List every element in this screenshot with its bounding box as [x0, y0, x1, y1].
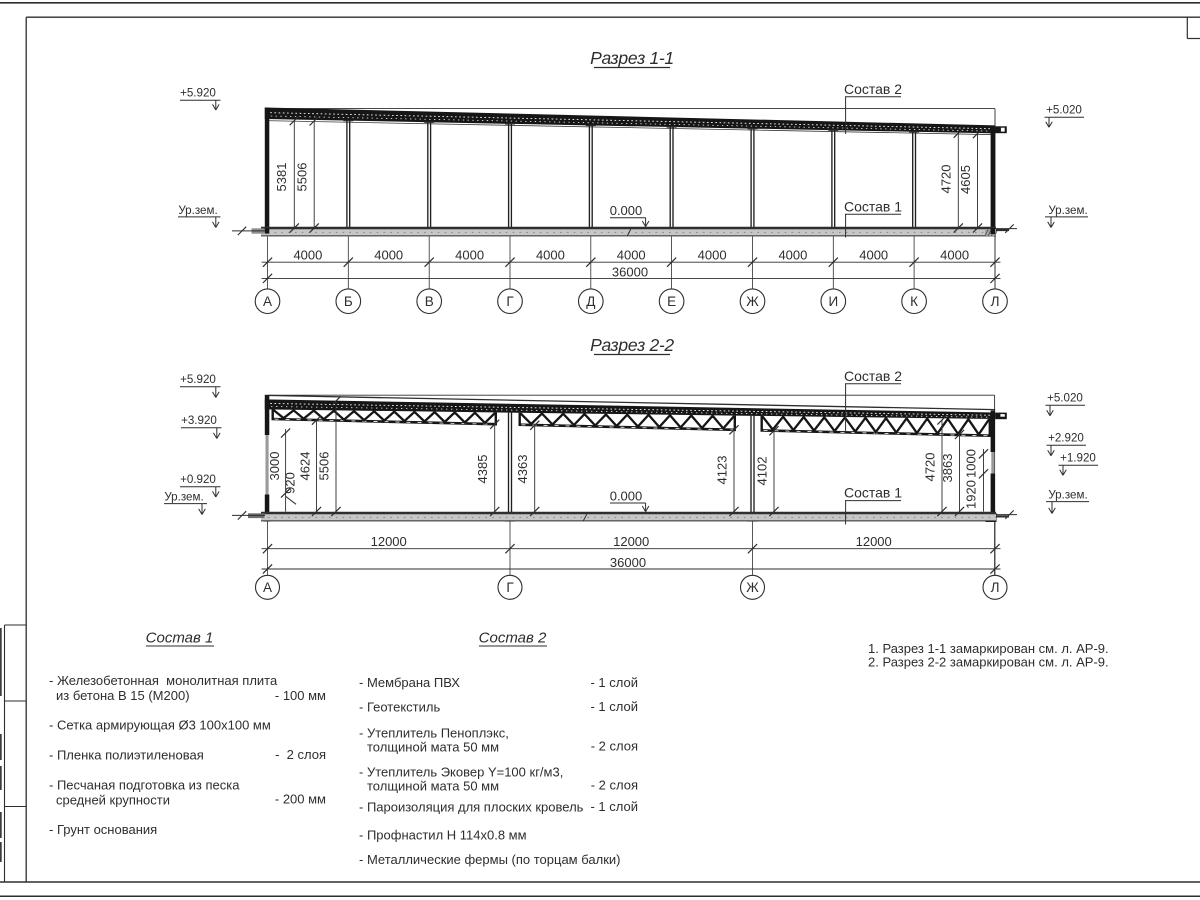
- svg-text:- 2 слоя: - 2 слоя: [275, 747, 326, 762]
- svg-text:+5.020: +5.020: [1047, 392, 1083, 405]
- svg-text:В: В: [425, 294, 434, 309]
- svg-text:- Грунт основания: - Грунт основания: [49, 822, 157, 837]
- svg-text:3863: 3863: [940, 454, 955, 483]
- svg-text:К: К: [910, 294, 918, 309]
- svg-text:5506: 5506: [295, 163, 310, 192]
- svg-text:4720: 4720: [923, 453, 938, 482]
- svg-text:Г: Г: [506, 580, 514, 595]
- svg-text:- 100 мм: - 100 мм: [275, 688, 326, 703]
- svg-text:- Мембрана ПВХ: - Мембрана ПВХ: [359, 675, 460, 690]
- svg-text:- Железобетонная монолитная п: - Железобетонная монолитная плита: [49, 673, 278, 688]
- svg-text:- 2 слоя: - 2 слоя: [591, 739, 638, 754]
- svg-text:Состав 2: Состав 2: [844, 81, 902, 97]
- svg-text:4000: 4000: [536, 247, 565, 262]
- svg-text:Состав 1: Состав 1: [844, 485, 902, 501]
- svg-text:4000: 4000: [698, 247, 727, 262]
- svg-text:36000: 36000: [610, 555, 646, 570]
- svg-text:- 1 слой: - 1 слой: [590, 699, 638, 714]
- svg-text:Состав 2: Состав 2: [479, 630, 547, 647]
- svg-text:толщиной мата 50 мм: толщиной мата 50 мм: [367, 779, 499, 794]
- svg-text:4000: 4000: [859, 247, 888, 262]
- svg-text:И: И: [828, 294, 838, 309]
- svg-text:+0.920: +0.920: [180, 473, 216, 486]
- svg-text:- Профнастил Н 114х0.8 мм: - Профнастил Н 114х0.8 мм: [359, 828, 527, 843]
- svg-text:Ж: Ж: [746, 580, 759, 595]
- svg-text:+3.920: +3.920: [181, 414, 217, 427]
- svg-text:- Утеплитель Пеноплэкс,: - Утеплитель Пеноплэкс,: [359, 726, 509, 741]
- svg-text:Ур.зем.: Ур.зем.: [178, 204, 217, 217]
- svg-text:- Геотекстиль: - Геотекстиль: [359, 700, 440, 715]
- svg-text:- 200 мм: - 200 мм: [275, 792, 326, 807]
- svg-text:2. Разрез 2-2 замаркирован см.: 2. Разрез 2-2 замаркирован см. л. АР-9.: [868, 655, 1109, 670]
- svg-text:- Пленка полиэтиленовая: - Пленка полиэтиленовая: [49, 748, 204, 763]
- svg-text:920: 920: [283, 472, 298, 494]
- svg-text:Е: Е: [667, 294, 676, 309]
- svg-text:Л: Л: [991, 294, 1000, 309]
- svg-text:Состав 2: Состав 2: [844, 368, 902, 384]
- svg-text:- 2 слоя: - 2 слоя: [591, 778, 638, 793]
- svg-text:1000: 1000: [964, 449, 979, 478]
- svg-text:Д: Д: [586, 294, 595, 309]
- svg-text:12000: 12000: [613, 534, 649, 549]
- svg-text:Л: Л: [991, 580, 1000, 595]
- svg-text:0.000: 0.000: [610, 489, 643, 504]
- svg-text:+5.920: +5.920: [180, 373, 216, 386]
- svg-text:Состав 1: Состав 1: [844, 199, 902, 215]
- svg-text:+5.920: +5.920: [180, 87, 216, 100]
- svg-text:4000: 4000: [940, 247, 969, 262]
- svg-text:4000: 4000: [778, 247, 807, 262]
- svg-text:4102: 4102: [755, 457, 770, 486]
- svg-text:- 1 слой: - 1 слой: [590, 675, 638, 690]
- svg-text:5506: 5506: [317, 452, 332, 481]
- svg-text:Разрез 1-1: Разрез 1-1: [590, 48, 674, 68]
- svg-text:- Утеплитель Эковер Y=100 кг/м: - Утеплитель Эковер Y=100 кг/м3,: [359, 765, 563, 780]
- svg-text:12000: 12000: [856, 534, 892, 549]
- svg-text:А: А: [263, 294, 272, 309]
- svg-text:4363: 4363: [515, 455, 530, 484]
- svg-text:Ж: Ж: [746, 294, 759, 309]
- svg-text:+5.020: +5.020: [1046, 104, 1082, 117]
- svg-text:Ур.зем.: Ур.зем.: [1048, 489, 1087, 502]
- svg-text:4123: 4123: [715, 456, 730, 485]
- svg-text:А: А: [263, 580, 272, 595]
- svg-text:4000: 4000: [374, 247, 403, 262]
- svg-text:Б: Б: [344, 294, 353, 309]
- svg-text:0.000: 0.000: [610, 203, 643, 218]
- svg-text:Ур.зем.: Ур.зем.: [1048, 204, 1087, 217]
- svg-text:1920: 1920: [964, 480, 979, 509]
- svg-text:Г: Г: [506, 294, 514, 309]
- svg-text:4000: 4000: [293, 247, 322, 262]
- svg-text:4000: 4000: [455, 247, 484, 262]
- svg-text:из бетона В 15 (М200): из бетона В 15 (М200): [56, 688, 190, 703]
- svg-text:Состав 1: Состав 1: [146, 630, 214, 647]
- svg-text:4605: 4605: [958, 165, 973, 194]
- svg-text:4000: 4000: [617, 247, 646, 262]
- svg-text:3000: 3000: [267, 452, 282, 481]
- svg-text:5381: 5381: [274, 163, 289, 192]
- svg-text:Разрез 2-2: Разрез 2-2: [590, 335, 674, 355]
- svg-text:средней крупности: средней крупности: [56, 793, 170, 808]
- svg-text:+1.920: +1.920: [1060, 452, 1096, 465]
- svg-text:- Сетка армирующая Ø3 100х100: - Сетка армирующая Ø3 100х100 мм: [49, 718, 271, 733]
- svg-text:4385: 4385: [475, 455, 490, 484]
- svg-text:- Пароизоляция для плоских кро: - Пароизоляция для плоских кровель: [359, 800, 584, 815]
- svg-text:4720: 4720: [939, 165, 954, 194]
- svg-text:- Металлические фермы (по торц: - Металлические фермы (по торцам балки): [359, 852, 620, 867]
- svg-text:- Песчаная подготовка из песка: - Песчаная подготовка из песка: [49, 778, 240, 793]
- svg-text:4624: 4624: [298, 452, 313, 481]
- svg-text:- 1 слой: - 1 слой: [590, 799, 638, 814]
- svg-text:Ур.зем.: Ур.зем.: [164, 491, 203, 504]
- svg-text:36000: 36000: [612, 265, 648, 280]
- svg-text:12000: 12000: [371, 534, 407, 549]
- svg-text:толщиной мата 50 мм: толщиной мата 50 мм: [367, 740, 499, 755]
- svg-text:+2.920: +2.920: [1048, 432, 1084, 445]
